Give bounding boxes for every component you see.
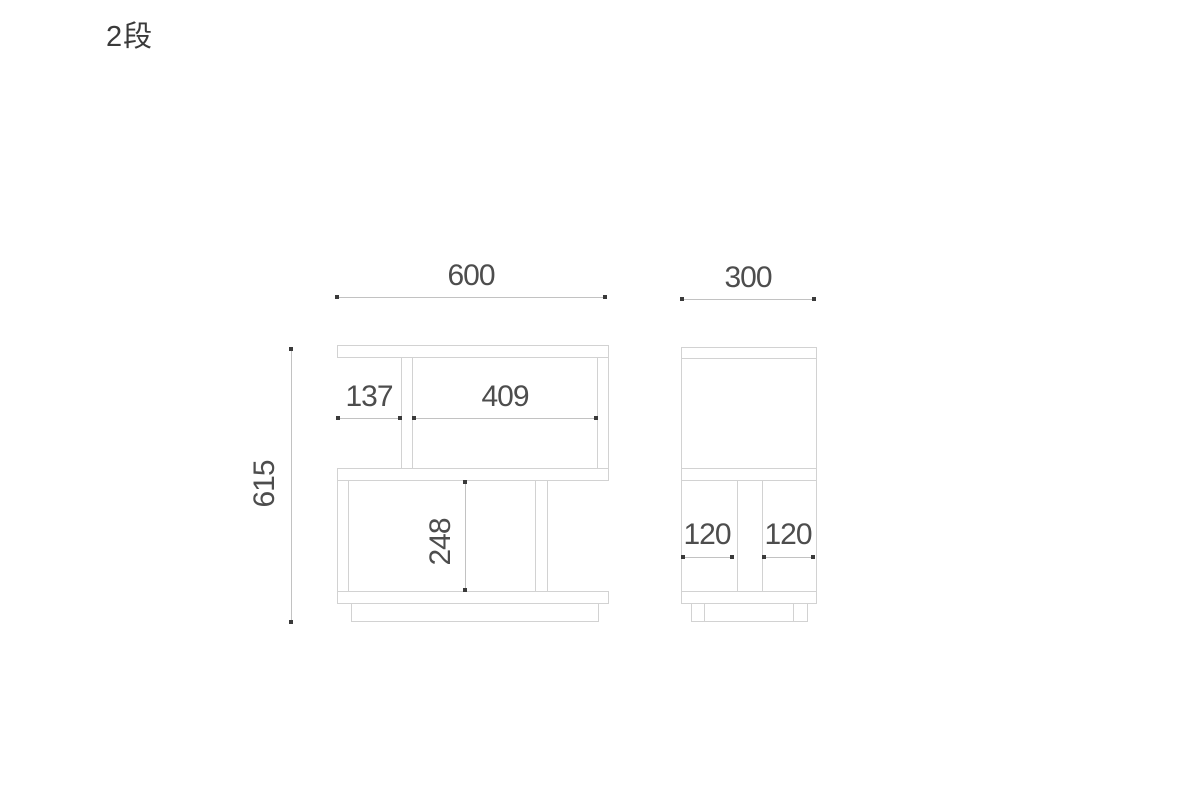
side-base-front-foot-line	[704, 603, 705, 622]
dimension-endpoint-dot	[289, 347, 293, 351]
front-lower-divider-panel	[535, 480, 548, 592]
dimension-endpoint-dot	[762, 555, 766, 559]
front-middle-shelf-board	[337, 468, 609, 481]
dimension-label: 248	[426, 518, 456, 565]
front-base-plinth	[351, 603, 599, 622]
dimension-endpoint-dot	[463, 588, 467, 592]
dimension-label: 409	[481, 382, 528, 412]
dimension-line	[764, 557, 813, 558]
dimension-line	[338, 418, 400, 419]
drawing-title: 2段	[106, 22, 153, 54]
dimension-endpoint-dot	[730, 555, 734, 559]
dimension-label: 120	[764, 520, 811, 550]
dimension-endpoint-dot	[336, 416, 340, 420]
side-bottom-board-line	[681, 591, 817, 592]
dimension-endpoint-dot	[289, 620, 293, 624]
dimension-endpoint-dot	[463, 480, 467, 484]
side-top-board-line	[681, 358, 817, 359]
dimension-endpoint-dot	[681, 555, 685, 559]
dimension-line	[291, 349, 292, 623]
dimension-endpoint-dot	[603, 295, 607, 299]
dimension-line	[337, 297, 606, 298]
dimension-endpoint-dot	[811, 555, 815, 559]
side-base-back-foot-line	[793, 603, 794, 622]
dimension-endpoint-dot	[398, 416, 402, 420]
side-middle-shelf-bottom-line	[681, 480, 817, 481]
dimension-endpoint-dot	[594, 416, 598, 420]
side-middle-shelf-top-line	[681, 468, 817, 469]
dimension-label: 137	[345, 382, 392, 412]
dimension-endpoint-dot	[412, 416, 416, 420]
front-upper-divider-panel	[401, 357, 413, 469]
front-top-board	[337, 345, 609, 358]
dimension-endpoint-dot	[680, 297, 684, 301]
dimension-line	[683, 557, 732, 558]
drawing-canvas: 2段 600 615 137 409	[0, 0, 1200, 800]
dimension-line	[414, 418, 596, 419]
dimension-label: 120	[683, 520, 730, 550]
side-outer-outline	[681, 347, 817, 604]
dimension-label: 600	[447, 261, 494, 291]
side-divider-back-line	[762, 480, 763, 591]
dimension-label: 615	[250, 460, 280, 507]
front-upper-right-side-panel	[597, 357, 609, 469]
dimension-line	[682, 299, 814, 300]
dimension-endpoint-dot	[812, 297, 816, 301]
dimension-label: 300	[724, 263, 771, 293]
dimension-line	[465, 482, 466, 590]
front-lower-left-side-panel	[337, 480, 349, 592]
side-divider-front-line	[737, 480, 738, 591]
dimension-endpoint-dot	[335, 295, 339, 299]
side-base-plinth	[691, 603, 808, 622]
